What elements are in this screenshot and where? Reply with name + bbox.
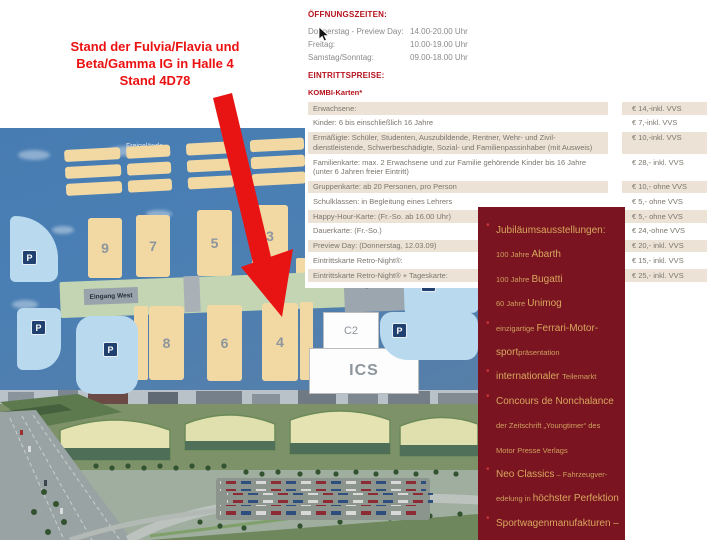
parking-area bbox=[10, 216, 58, 282]
opening-hours-table: Donnerstag - Preview Day: 14.00-20.00 Uh… bbox=[308, 27, 720, 62]
highlight-item: edelung in höchster Perfektion bbox=[496, 486, 617, 508]
hours-row: Donnerstag - Preview Day: 14.00-20.00 Uh… bbox=[308, 27, 720, 36]
highlight-item: Sportwagenmanufakturen – bbox=[496, 511, 617, 533]
highlight-item: der Zeitschrift „Youngtimer“ des bbox=[496, 413, 617, 435]
highlight-item: 100 Jahre Bugatti bbox=[496, 267, 617, 289]
highlight-item: 100 Jahre Abarth bbox=[496, 242, 617, 264]
hall-6: 6 bbox=[207, 305, 242, 381]
annotation-line: Beta/Gamma IG in Halle 4 bbox=[35, 55, 275, 72]
highlight-item: internationaler Teilemarkt bbox=[496, 364, 617, 386]
hall-9: 9 bbox=[88, 218, 122, 278]
highlight-item: sportpräsentation bbox=[496, 340, 617, 362]
prices-title: EINTRITTSPREISE: bbox=[308, 71, 720, 80]
parking-icon: P bbox=[103, 342, 118, 357]
cloud bbox=[52, 226, 74, 234]
freigelaende-stalls bbox=[64, 137, 312, 200]
parking-icon: P bbox=[392, 323, 407, 338]
highlight-item: Neo Classics – Fahrzeugver- bbox=[496, 462, 617, 484]
highlight-item: pure Dynamik bbox=[496, 535, 617, 540]
parking-icon: P bbox=[31, 320, 46, 335]
highlight-item: 60 Jahre Unimog bbox=[496, 291, 617, 313]
hours-row: Freitag: 10.00-19.00 Uhr bbox=[308, 40, 720, 49]
kombi-subtitle: KOMBI-Karten* bbox=[308, 88, 720, 97]
price-row: Erwachsene:€ 14,-inkl. VVS bbox=[308, 102, 707, 115]
highlight-item: Motor Presse Verlags bbox=[496, 438, 617, 460]
annotation-line: Stand 4D78 bbox=[35, 72, 275, 89]
page: Freigelände 9 7 5 3 Eingang West Eingang… bbox=[0, 0, 720, 540]
annotation-line: Stand der Fulvia/Flavia und bbox=[35, 38, 275, 55]
cloud bbox=[18, 150, 50, 160]
highlights-box: Jubiläumsausstellungen: 100 Jahre Abarth… bbox=[478, 207, 625, 540]
highlight-item: einzigartige Ferrari-Motor- bbox=[496, 316, 617, 338]
stand-annotation: Stand der Fulvia/Flavia und Beta/Gamma I… bbox=[35, 38, 275, 89]
opening-hours-title: ÖFFNUNGSZEITEN: bbox=[308, 10, 720, 19]
eingang-west-tab: Eingang West bbox=[84, 287, 139, 305]
price-row: Kinder: 6 bis einschließlich 16 Jahre€ 7… bbox=[308, 117, 707, 130]
hall-8: 8 bbox=[149, 306, 184, 380]
band-connector bbox=[183, 276, 200, 313]
hours-row: Samstag/Sonntag: 09.00-18.00 Uhr bbox=[308, 53, 720, 62]
price-row: Familienkarte: max. 2 Erwachsene und zur… bbox=[308, 156, 707, 179]
price-row: Gruppenkarte: ab 20 Personen, pro Person… bbox=[308, 181, 707, 194]
hall-3: 3 bbox=[252, 205, 288, 267]
parking-area bbox=[17, 308, 61, 370]
price-row: Ermäßigte: Schüler, Studenten, Auszubild… bbox=[308, 132, 707, 155]
hall-5: 5 bbox=[197, 210, 232, 276]
parking-icon: P bbox=[22, 250, 37, 265]
aerial-photo bbox=[0, 388, 478, 540]
highlight-item: Concours de Nonchalance bbox=[496, 389, 617, 411]
building-c2: C2 bbox=[323, 312, 379, 350]
hall-4: 4 bbox=[262, 303, 298, 381]
highlight-item: Jubiläumsausstellungen: bbox=[496, 218, 617, 240]
eingang-west-label: Eingang West bbox=[89, 292, 132, 301]
hall-7: 7 bbox=[136, 215, 170, 277]
